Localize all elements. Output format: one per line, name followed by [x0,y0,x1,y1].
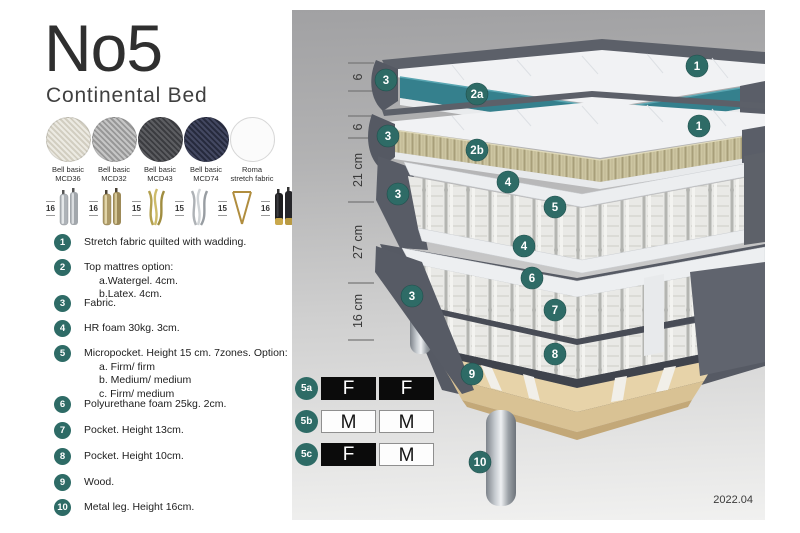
measure-6-top: 6 [351,73,365,80]
svg-text:3: 3 [385,131,391,143]
list-item: 3 Fabric. [54,295,116,312]
page-subtitle: Continental Bed [46,84,207,108]
list-item: 7 Pocket. Height 13cm. [54,422,184,439]
firmness-cell: F [321,377,376,400]
list-item: 1 Stretch fabric quilted with wadding. [54,234,246,251]
item-number-badge: 8 [54,448,71,465]
badge-3-base: 3 [401,285,423,307]
badge-3-layer3: 3 [387,183,409,205]
list-item: 5 Micropocket. Height 15 cm. 7zones. Opt… [54,345,288,401]
item-number-badge: 2 [54,259,71,276]
twisted-gold-leg-icon [144,184,168,228]
measure-21cm: 21 cm [351,153,365,187]
twisted-silver-leg-icon [187,184,211,228]
list-item: 9 Wood. [54,474,114,491]
bed-diagram-panel: 6 6 21 cm 27 cm 16 cm [292,10,765,520]
swatch-mcd36: Bell basicMCD36 [46,117,90,183]
svg-text:2b: 2b [470,145,483,157]
swatch-mcd32: Bell basicMCD32 [92,117,136,183]
leg-option-twisted-gold: 15 [130,184,168,228]
badge-2a-watergel: 2a [466,83,488,105]
svg-text:6: 6 [529,273,535,285]
firmness-cell: F [321,443,376,466]
firmness-row-5b: 5b M M [295,410,434,433]
svg-text:7: 7 [552,305,558,317]
svg-text:3: 3 [395,189,401,201]
swatch-roma: Romastretch fabric [230,117,274,183]
firmness-cell: F [379,377,434,400]
badge-2b-latex: 2b [466,139,488,161]
item-number-badge: 7 [54,422,71,439]
leg-options: 16 16 15 15 [44,184,297,228]
list-item: 4 HR foam 30kg. 3cm. [54,320,180,337]
svg-text:5: 5 [552,202,559,214]
measure-16cm: 16 cm [351,294,365,328]
measure-6-second: 6 [351,123,365,130]
firmness-row-5a: 5a F F [295,377,434,400]
list-item: 6 Polyurethane foam 25kg. 2cm. [54,396,226,413]
leg-option-twisted-silver: 15 [173,184,211,228]
list-item: 10 Metal leg. Height 16cm. [54,499,194,516]
hairpin-gold-leg-icon [230,184,254,228]
page-title: No5 [44,15,162,81]
leg-option-cylinder-gold: 16 [87,184,125,228]
cylinder-gold-leg-icon [101,184,125,228]
svg-text:3: 3 [383,75,389,87]
svg-text:2a: 2a [471,89,484,101]
badge-4-hr-foam-top: 4 [497,171,519,193]
firmness-cell: M [379,410,434,433]
leg-option-hairpin-gold: 15 [216,184,254,228]
badge-3-layer1: 3 [375,69,397,91]
svg-text:3: 3 [409,291,415,303]
badge-5c: 5c [295,443,318,466]
badge-1-layer2: 1 [688,115,710,137]
firmness-row-5c: 5c F M [295,443,434,466]
fabric-swatch-circle [230,117,275,162]
item-number-badge: 1 [54,234,71,251]
badge-5a: 5a [295,377,318,400]
item-number-badge: 4 [54,320,71,337]
list-item: 8 Pocket. Height 10cm. [54,448,184,465]
fabric-swatch-circle [92,117,137,162]
svg-text:8: 8 [552,349,559,361]
svg-text:4: 4 [521,241,528,253]
leg-option-cylinder-silver: 16 [44,184,82,228]
badge-9-wood: 9 [461,363,483,385]
badge-4-hr-foam-bottom: 4 [513,235,535,257]
version-date: 2022.04 [713,494,753,506]
badge-8-pocket10: 8 [544,343,566,365]
badge-10-metal-leg: 10 [469,451,491,473]
firmness-cell: M [379,443,434,466]
fabric-swatch-circle [184,117,229,162]
fabric-swatch-circle [46,117,91,162]
layer-base [375,244,765,506]
swatch-mcd74: Bell basicMCD74 [184,117,228,183]
item-number-badge: 6 [54,396,71,413]
measurement-labels: 6 6 21 cm 27 cm 16 cm [351,73,365,328]
fabric-swatches: Bell basicMCD36 Bell basicMCD32 Bell bas… [46,117,274,183]
measure-27cm: 27 cm [351,225,365,259]
badge-6-poly-foam: 6 [521,267,543,289]
badge-7-pocket13: 7 [544,299,566,321]
svg-text:9: 9 [469,369,475,381]
badge-5b: 5b [295,410,318,433]
item-number-badge: 9 [54,474,71,491]
badge-5-micropocket: 5 [544,196,566,218]
firmness-cell: M [321,410,376,433]
badge-1-top: 1 [686,55,708,77]
item-number-badge: 3 [54,295,71,312]
item-number-badge: 10 [54,499,71,516]
svg-text:10: 10 [474,457,487,469]
svg-text:1: 1 [696,121,703,133]
cylinder-silver-leg-icon [58,184,82,228]
fabric-swatch-circle [138,117,183,162]
svg-text:1: 1 [694,61,701,73]
badge-3-layer2: 3 [377,125,399,147]
svg-text:4: 4 [505,177,512,189]
swatch-mcd43: Bell basicMCD43 [138,117,182,183]
item-number-badge: 5 [54,345,71,362]
